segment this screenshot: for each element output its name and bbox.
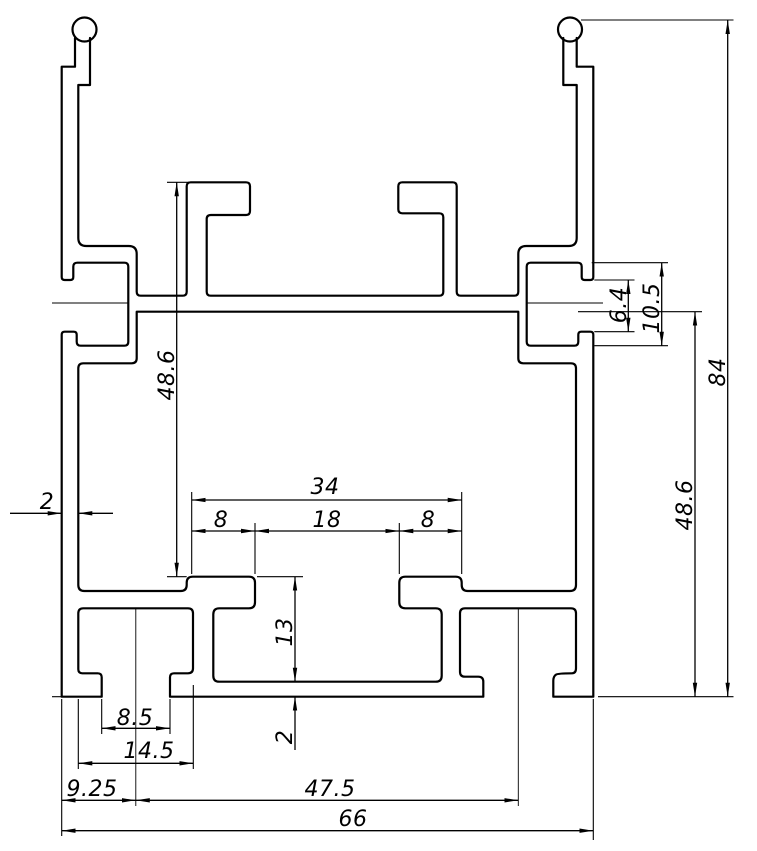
dim-bottom-slot-center-offset: 9.25 xyxy=(67,777,118,802)
dimension-labels: 48.6 34 8 18 8 2 6.4 10.5 84 48.6 13 2 8… xyxy=(40,283,731,832)
extension-lines xyxy=(52,20,734,840)
left-bead-circle xyxy=(73,18,97,42)
dim-bottom-centers-span: 47.5 xyxy=(305,777,356,802)
dim-bottom-slot-outer-width: 14.5 xyxy=(124,739,175,764)
dim-bottom-slot-inner-width: 8.5 xyxy=(117,706,154,731)
dim-side-pocket-depth: 10.5 xyxy=(640,283,665,334)
dim-bottom-total-width: 66 xyxy=(339,807,368,832)
dim-bottom-channel-depth: 13 xyxy=(273,618,298,647)
right-bead-circle xyxy=(558,18,582,42)
dim-overall-height: 84 xyxy=(706,358,731,387)
dim-slot-flange-left: 8 xyxy=(214,508,229,533)
dim-bottom-floor-thickness: 2 xyxy=(273,730,298,745)
dim-lower-right-height: 48.6 xyxy=(673,480,698,531)
dim-slot-flange-right: 8 xyxy=(421,508,436,533)
dim-wall-thickness: 2 xyxy=(40,490,55,515)
dim-side-mouth-opening: 6.4 xyxy=(607,287,632,324)
profile-outer-boundary xyxy=(62,38,594,697)
drawing-page: 48.6 34 8 18 8 2 6.4 10.5 84 48.6 13 2 8… xyxy=(0,0,757,851)
profile-technical-drawing: 48.6 34 8 18 8 2 6.4 10.5 84 48.6 13 2 8… xyxy=(0,0,757,851)
dim-slot-opening: 18 xyxy=(313,508,342,533)
profile-top-structure xyxy=(78,38,576,296)
dim-top-slot-group-width: 34 xyxy=(311,475,340,500)
dim-upper-channel-height: 48.6 xyxy=(155,350,180,401)
profile-outline xyxy=(52,18,603,697)
